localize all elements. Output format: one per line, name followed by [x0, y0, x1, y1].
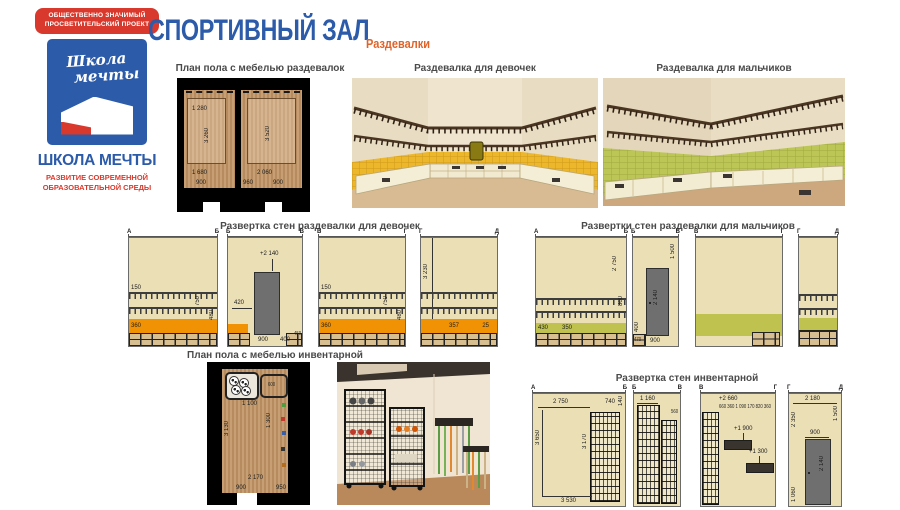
dim-label: 3 530: [561, 498, 576, 504]
plan-room-inventory: 600 1 100 3 130 1 300 2 170 900 950: [222, 369, 288, 493]
logo-script-text: Школа мечты: [47, 49, 147, 87]
hook-rail: [129, 292, 217, 299]
shoe-shelves: [228, 333, 250, 346]
dim-label: 2 060: [257, 170, 272, 176]
elevation-wall: 3 230 357 25: [420, 237, 498, 347]
dim-label: 480: [397, 310, 403, 320]
building-icon: [61, 97, 133, 135]
dim-line: [542, 410, 543, 496]
dim-label: 1 060: [791, 487, 797, 502]
dim-label: 480: [209, 310, 215, 320]
elevation-wall: +2 660 660 360 1 090 170 820 360 +1 900 …: [700, 393, 776, 507]
page-subtitle: Раздевалки: [366, 37, 430, 51]
hook-rail: [799, 294, 837, 301]
boys-elevation-GD: ГД: [798, 229, 838, 347]
dim-label: 350: [562, 325, 572, 331]
dim-label: 960: [243, 180, 253, 186]
building-base-shape: [61, 122, 91, 135]
wire-rack-drawing: [702, 412, 719, 505]
dim-label: 560: [671, 410, 678, 415]
boys-room-render: [603, 78, 845, 206]
brand-badge: ОБЩЕСТВЕННО ЗНАЧИМЫЙ ПРОСВЕТИТЕЛЬСКИЙ ПР…: [35, 8, 159, 34]
dim-label: 900: [196, 180, 206, 186]
dim-label: 1 160: [640, 396, 655, 402]
shoe-shelves: [319, 333, 405, 346]
dim-label: 2 170: [248, 475, 263, 481]
dim-label: 1 300: [266, 413, 272, 428]
brand-name: ШКОЛА МЕЧТЫ: [35, 152, 159, 170]
dim-label: 950: [276, 485, 286, 491]
dim-label: 150: [131, 285, 141, 291]
dim-label: 420: [234, 300, 244, 306]
dim-label: 2 140: [819, 456, 825, 471]
badge-line1: ОБЩЕСТВЕННО ЗНАЧИМЫЙ: [38, 12, 156, 21]
dim-label: +1 900: [734, 426, 753, 432]
dim-label: +2 660: [719, 396, 738, 402]
dim-label: 900: [258, 337, 268, 343]
logo-script-line2: мечты: [65, 65, 147, 86]
dim-label: +1 300: [749, 449, 768, 455]
elevation-wall: 1 500 2 140 400 470 900: [632, 237, 679, 347]
dim-label: +2 140: [260, 251, 279, 257]
hook-rail: [319, 307, 405, 314]
plan-furniture-zone: [247, 98, 296, 164]
inventory-elevation-BV: БВ 1 160 560: [633, 385, 681, 507]
page-title: СПОРТИВНЫЙ ЗАЛ: [148, 14, 369, 48]
equipment-item: [281, 447, 285, 451]
dim-line: [232, 308, 252, 309]
inventory-floor-plan: 600 1 100 3 130 1 300 2 170 900 950: [207, 362, 310, 505]
elevation-wall: 2 180 1 500 2 350 1 060 900 2 140: [788, 393, 842, 507]
dim-arrow: [272, 259, 273, 271]
dim-label: 1 500: [670, 244, 676, 259]
door-opening: [203, 202, 220, 212]
elevation-wall: 150 360 750 480: [128, 237, 218, 347]
dim-label: 400: [280, 337, 290, 343]
boys-elevation-VG: ВГ: [695, 229, 783, 347]
shoe-shelves: [129, 333, 217, 346]
dim-label: 1 500: [833, 406, 839, 421]
hook-rail: [319, 292, 405, 299]
dim-line: [538, 407, 590, 408]
dim-label: 3 520: [265, 126, 271, 141]
inventory-elevation-AB: АБ 2 750 140 740 3 650 3 170 3 530: [532, 385, 626, 507]
dim-label: 750: [383, 296, 389, 306]
equipment-item: [282, 403, 286, 407]
wire-rack-drawing: [661, 420, 677, 504]
dim-label: 1 280: [192, 106, 207, 112]
hook-rail: [536, 311, 626, 318]
dim-label: 140: [618, 396, 624, 406]
wire-rack-1: [345, 390, 385, 489]
tagline-line1: РАЗВИТИЕ СОВРЕМЕННОЙ: [35, 173, 159, 184]
equipment-bin: 600: [260, 374, 288, 398]
dim-arrow: [743, 433, 744, 440]
girls-room-render: [352, 78, 598, 208]
dim-label: 900: [810, 430, 820, 436]
inventory-elevation-VG: ВГ +2 660 660 360 1 090 170 820 360 +1 9…: [700, 385, 776, 507]
equipment-item: [282, 431, 286, 435]
equipment-item: [282, 463, 286, 467]
hook-rail: [421, 307, 497, 314]
dim-label: 25: [482, 323, 489, 329]
plan-hooks-row: [186, 91, 233, 93]
plan-room-boys: 3 520 2 060 960 900: [241, 90, 302, 188]
inventory-room-render: [337, 362, 490, 505]
dim-line: [637, 403, 658, 404]
elevation-wall: 2 750 140 740 3 650 3 170 3 530: [532, 393, 626, 507]
dim-label: 360: [131, 323, 141, 329]
dim-label: 1 680: [192, 170, 207, 176]
dim-label: 360: [321, 323, 331, 329]
wall-holder-drawing: [724, 440, 752, 450]
dim-line: [805, 437, 829, 438]
dim-label: 2 750: [612, 256, 618, 271]
dim-label: 2 750: [553, 399, 568, 405]
dim-label: 3 650: [535, 430, 541, 445]
dim-label: 800: [618, 296, 624, 306]
ball-bin: [225, 372, 259, 400]
door-opening: [237, 493, 257, 505]
presentation-slide: ОБЩЕСТВЕННО ЗНАЧИМЫЙ ПРОСВЕТИТЕЛЬСКИЙ ПР…: [0, 0, 900, 510]
dim-label: 2 180: [805, 396, 820, 402]
inventory-elevation-GD: ГД 2 180 1 500 2 350 1 060 900 2 140: [788, 385, 842, 507]
boys-elevation-BV: БВ 1 500 2 140 400 470 900: [632, 229, 679, 347]
girls-elevation-AB: АБ 150 360 750 480: [128, 229, 218, 347]
badge-line2: ПРОСВЕТИТЕЛЬСКИЙ ПРОЕКТ: [38, 21, 156, 30]
dim-label: 400: [634, 322, 640, 332]
girls-render-title: Раздевалка для девочек: [352, 63, 598, 74]
school-logo: Школа мечты: [47, 39, 147, 145]
hook-rail: [129, 307, 217, 314]
elevation-wall: [798, 237, 838, 347]
dim-label: 740: [605, 399, 615, 405]
shoe-shelves: [799, 330, 837, 346]
dim-label: 900: [273, 180, 283, 186]
dim-label: 150: [321, 285, 331, 291]
shoe-shelves: [752, 332, 780, 346]
dim-label: 3 260: [204, 128, 210, 143]
door: [254, 272, 280, 335]
dim-label: 750: [195, 296, 201, 306]
boys-elevation-AB: АБ 2 750 800 430 350: [535, 229, 627, 347]
inventory-plan-title: План пола с мебелью инвентарной: [180, 350, 370, 361]
elevation-wall: [695, 237, 783, 347]
equipment-item: [281, 417, 285, 421]
dim-label: 3 130: [224, 421, 230, 436]
wire-rack-2: [390, 408, 424, 491]
door: [805, 439, 831, 505]
dim-label: 450: [294, 332, 301, 337]
elevation-wall: 2 750 800 430 350: [535, 237, 627, 347]
wire-rack-drawing: [637, 405, 660, 504]
dim-label: 900: [650, 338, 660, 344]
hook-rail: [536, 298, 626, 305]
dim-label: 660 360 1 090 170 820 360: [719, 405, 767, 410]
hook-rail: [421, 292, 497, 299]
elevation-wall: +2 140 420 900 400 450: [227, 237, 303, 347]
dim-label: 1 100: [242, 401, 257, 407]
changing-rooms-floor-plan: 1 280 3 260 1 680 900 3 520 2 060 960 90…: [177, 78, 310, 212]
girls-elevation-BV: БВ +2 140 420 900 400 450: [227, 229, 303, 347]
plan-room-girls: 1 280 3 260 1 680 900: [184, 90, 235, 188]
shoe-shelves: [536, 333, 626, 346]
boys-render-title: Раздевалка для мальчиков: [603, 63, 845, 74]
door-opening: [265, 202, 282, 212]
dim-label: 900: [236, 485, 246, 491]
hook-rail: [799, 308, 837, 315]
dim-label: 470: [634, 338, 641, 343]
brand-block: ОБЩЕСТВЕННО ЗНАЧИМЫЙ ПРОСВЕТИТЕЛЬСКИЙ ПР…: [35, 8, 159, 194]
brand-tagline: РАЗВИТИЕ СОВРЕМЕННОЙ ОБРАЗОВАТЕЛЬНОЙ СРЕ…: [35, 173, 159, 194]
dim-line: [542, 496, 592, 497]
elevation-wall: 1 160 560: [633, 393, 681, 507]
inventory-elevations-title: Развертка стен инвентарной: [532, 373, 842, 384]
plan-hooks-row: [243, 91, 300, 93]
girls-elevation-GD: ГД 3 230 357 25: [420, 229, 498, 347]
dim-label: 3 170: [582, 434, 588, 449]
wire-rack-drawing: [590, 412, 620, 502]
changing-plan-title: План пола с мебелью раздевалок: [170, 63, 350, 74]
wall-holder-drawing: [746, 463, 774, 473]
shoe-shelves: [421, 333, 497, 346]
dim-label: 357: [449, 323, 459, 329]
elevation-wall: 150 360 750 480: [318, 237, 406, 347]
dim-label: 2 350: [791, 412, 797, 427]
dim-label: 600: [268, 383, 275, 388]
tagline-line2: ОБРАЗОВАТЕЛЬНОЙ СРЕДЫ: [35, 183, 159, 194]
dim-line: [793, 403, 837, 404]
dim-label: 2 140: [653, 290, 659, 305]
dim-label: 430: [538, 325, 548, 331]
dim-arrow: [759, 456, 760, 463]
dim-label: 3 230: [423, 264, 429, 279]
girls-elevation-VG: ВГ 150 360 750 480: [318, 229, 406, 347]
